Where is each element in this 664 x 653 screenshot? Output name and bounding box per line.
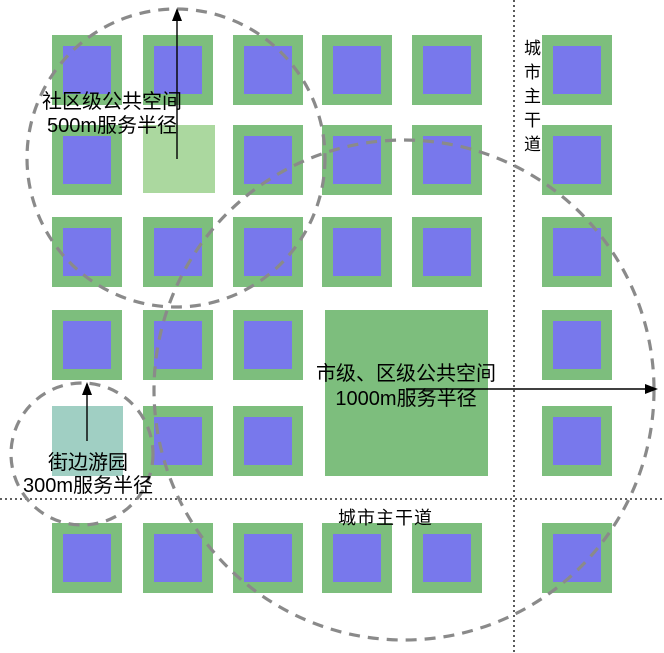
city-block-inner: [553, 534, 601, 582]
city-block-inner: [63, 534, 111, 582]
city-district-space-label: 市级、区级公共空间 1000m服务半径: [306, 362, 506, 412]
city-block-inner: [333, 228, 381, 276]
city-block-inner: [244, 417, 292, 465]
street-garden-label-line2: 300m服务半径: [8, 475, 168, 498]
city-block-inner: [553, 46, 601, 94]
city-block-inner: [553, 228, 601, 276]
street-garden-label-line1: 街边游园: [8, 452, 168, 475]
city-block-inner: [423, 534, 471, 582]
main-road-right-label: 城市主干道: [520, 39, 540, 159]
city-block-inner: [154, 321, 202, 369]
community-space-label-line1: 社区级公共空间: [22, 90, 202, 114]
city-block-inner: [553, 136, 601, 184]
community-space-label-line2: 500m服务半径: [22, 114, 202, 138]
city-block-inner: [244, 228, 292, 276]
city-block-inner: [63, 321, 111, 369]
main-road-bottom-label: 城市主干道: [338, 504, 433, 530]
service-radius-diagram: 社区级公共空间 500m服务半径 街边游园 300m服务半径 市级、区级公共空间…: [0, 0, 664, 653]
city-block-inner: [423, 228, 471, 276]
city-district-space-label-line1: 市级、区级公共空间: [306, 362, 506, 387]
city-block-inner: [244, 46, 292, 94]
city-block-inner: [244, 534, 292, 582]
city-block-inner: [553, 321, 601, 369]
city-district-radius-arrow-head-icon: [645, 384, 658, 394]
city-block-inner: [244, 136, 292, 184]
city-block-inner: [244, 321, 292, 369]
city-block-inner: [63, 136, 111, 184]
street-garden-label: 街边游园 300m服务半径: [8, 452, 168, 498]
city-block-inner: [333, 534, 381, 582]
city-district-space-label-line2: 1000m服务半径: [306, 387, 506, 412]
city-block-inner: [333, 46, 381, 94]
city-block-inner: [154, 534, 202, 582]
city-block-inner: [423, 46, 471, 94]
city-block-inner: [63, 46, 111, 94]
city-block-inner: [154, 46, 202, 94]
city-block-inner: [63, 228, 111, 276]
city-block-inner: [553, 417, 601, 465]
city-block-inner: [154, 228, 202, 276]
community-space-label: 社区级公共空间 500m服务半径: [22, 90, 202, 138]
